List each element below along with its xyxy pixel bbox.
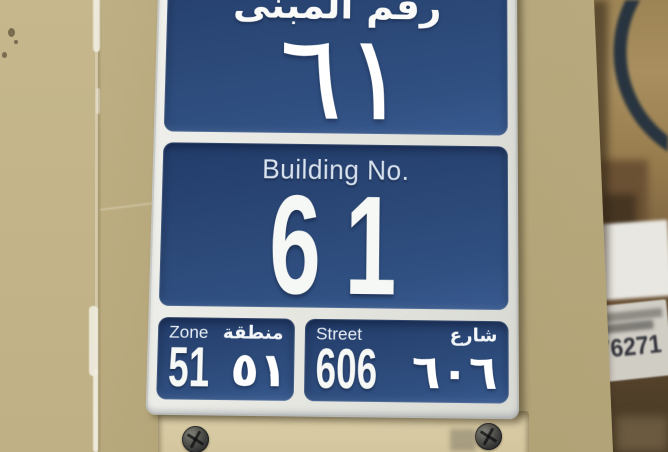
sign-panel-english: Building No. 61 (159, 142, 509, 310)
wall-speck (2, 52, 7, 58)
photo-scene: 76271 رقم المبنى ٦١ Building No. 61 (0, 0, 668, 452)
sign-panel-arabic: رقم المبنى ٦١ (164, 0, 508, 136)
zone-value-en: 51 (168, 344, 210, 391)
zone-street-row: Zone منطقة 51 ٥١ Street شارع 606 ٦٠٦ (156, 317, 509, 404)
paint-drip (93, 370, 98, 452)
white-paper (597, 220, 668, 301)
screw-icon (475, 423, 502, 450)
street-value-en: 606 (315, 346, 377, 393)
floor-patch (616, 416, 668, 452)
arabic-building-number: ٦١ (264, 28, 409, 127)
zone-value-ar: ٥١ (230, 348, 288, 391)
street-panel: Street شارع 606 ٦٠٦ (304, 319, 509, 404)
street-value-ar: ٦٠٦ (412, 351, 498, 395)
building-number: 61 (247, 191, 421, 300)
screw-icon (182, 426, 209, 452)
wall-speck (14, 40, 18, 44)
wall-speck (8, 28, 15, 37)
building-sign: رقم المبنى ٦١ Building No. 61 Zone منطقة… (146, 0, 520, 419)
paint-drip (89, 306, 98, 376)
paint-drip (93, 0, 100, 52)
paint-drip (96, 88, 100, 114)
zone-panel: Zone منطقة 51 ٥١ (156, 317, 295, 401)
plate-smudge (450, 429, 476, 451)
